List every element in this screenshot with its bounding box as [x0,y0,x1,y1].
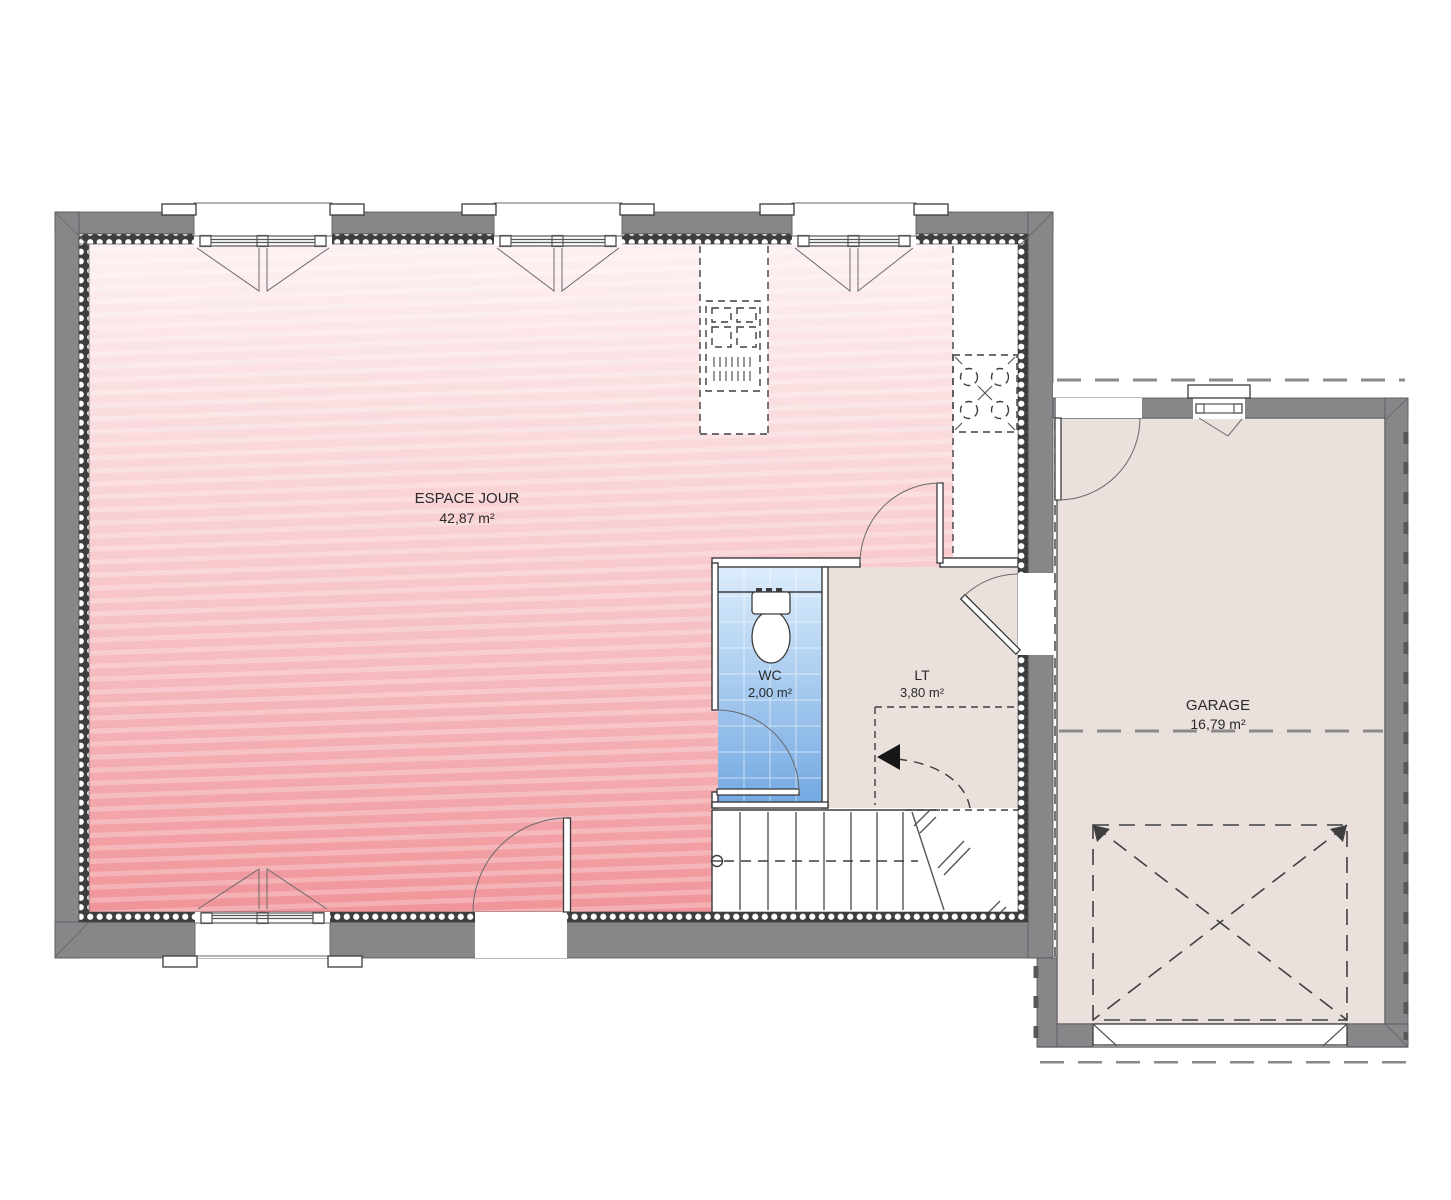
garage-name: GARAGE [1186,697,1250,714]
espace-jour-area: 42,87 m² [439,510,495,526]
kitchen-island [700,244,768,434]
staircase [712,808,1019,921]
kitchen-counter [953,244,1018,563]
lt-area: 3,80 m² [900,685,945,700]
lt-name: LT [914,667,930,683]
garage-area: 16,79 m² [1190,716,1246,732]
floor-plan-svg: ESPACE JOUR 42,87 m² WC 2,00 m² LT 3,80 … [0,0,1451,1200]
wc-name: WC [758,667,781,683]
espace-jour-name: ESPACE JOUR [415,490,520,507]
floor-plan-canvas: ESPACE JOUR 42,87 m² WC 2,00 m² LT 3,80 … [0,0,1451,1200]
wc-area: 2,00 m² [748,685,793,700]
